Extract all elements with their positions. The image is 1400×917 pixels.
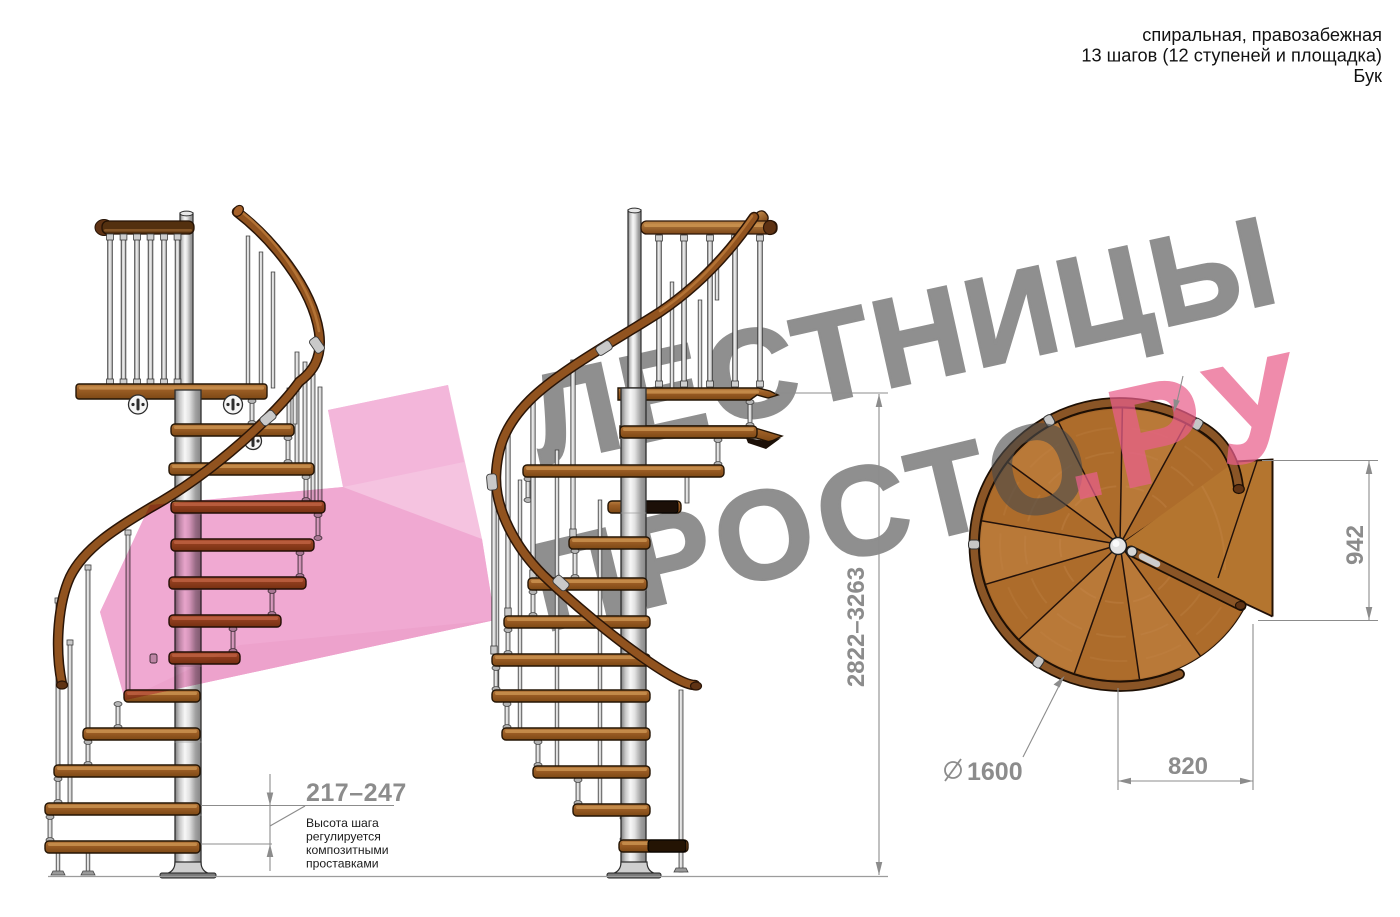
- svg-text:проставками: проставками: [306, 857, 379, 871]
- svg-text:217–247: 217–247: [306, 779, 407, 807]
- svg-text:спиральная, правозабежная: спиральная, правозабежная: [1142, 25, 1382, 45]
- svg-text:2822–3263: 2822–3263: [843, 567, 870, 687]
- svg-text:регулируется: регулируется: [306, 830, 381, 844]
- svg-text:820: 820: [1168, 753, 1208, 780]
- svg-text:композитными: композитными: [306, 843, 389, 857]
- svg-text:942: 942: [1342, 525, 1369, 565]
- svg-text:13 шагов (12 ступеней и площад: 13 шагов (12 ступеней и площадка): [1081, 46, 1382, 66]
- svg-text:Высота шага: Высота шага: [306, 816, 379, 830]
- svg-text:1600: 1600: [967, 758, 1023, 786]
- svg-text:Бук: Бук: [1353, 66, 1383, 86]
